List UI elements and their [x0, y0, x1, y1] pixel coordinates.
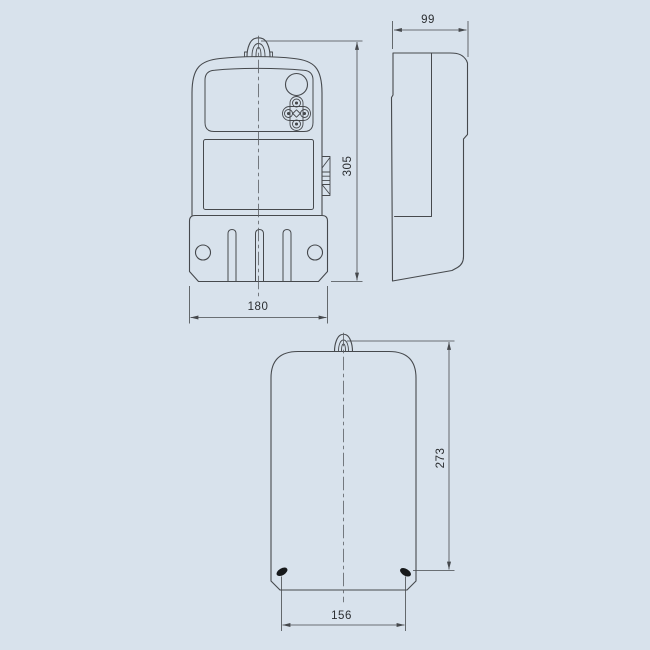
back-mounting-hole-left	[275, 566, 289, 578]
dim-label-height-305: 305	[341, 142, 355, 190]
dim-label-depth-99: 99	[404, 13, 452, 27]
front-register-window	[205, 68, 313, 131]
front-seal-screw-cluster	[283, 97, 311, 131]
technical-drawing	[0, 0, 650, 650]
front-screw-hole-left	[196, 245, 211, 260]
drawing-canvas: 99 305 180 273 156	[0, 0, 650, 650]
dim-label-width-180: 180	[234, 300, 282, 314]
back-view	[271, 333, 416, 602]
front-view	[190, 36, 331, 298]
front-cover-latch	[322, 157, 330, 196]
side-cover-seam	[395, 54, 432, 217]
side-profile-outline	[392, 53, 468, 281]
dim-label-width-156: 156	[318, 609, 366, 623]
front-terminal-slots	[228, 230, 291, 282]
front-body-outline	[192, 57, 322, 216]
front-screw-hole-right	[308, 245, 323, 260]
side-view	[392, 53, 468, 281]
front-round-opening	[286, 74, 308, 96]
dim-label-height-273: 273	[434, 434, 448, 482]
back-view-dimensions	[282, 341, 455, 631]
